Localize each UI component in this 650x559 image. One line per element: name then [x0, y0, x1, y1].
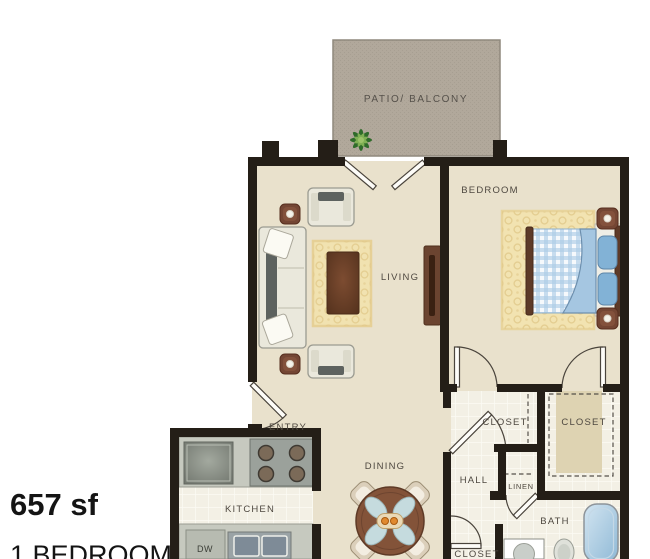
kitchen-sink	[228, 532, 291, 559]
coffee-table	[327, 252, 359, 314]
side-table-bottom	[280, 354, 300, 374]
patio-balcony: PATIO/ BALCONY	[333, 40, 500, 156]
plant-icon	[350, 129, 372, 151]
room-label-kitchen: KITCHEN	[225, 504, 275, 515]
walkin-closet-shelf	[556, 391, 602, 473]
room-label-living: LIVING	[381, 272, 419, 283]
floor-plan-svg: PATIO/ BALCONY	[0, 0, 650, 559]
refrigerator	[184, 442, 233, 484]
bathroom-sink	[504, 539, 544, 559]
walkin-closet-door	[601, 347, 606, 387]
bed	[526, 224, 622, 316]
dishwasher-label: DW	[197, 544, 213, 554]
room-label-dining: DINING	[365, 461, 405, 472]
room-label-bedroom: BEDROOM	[461, 185, 519, 196]
dining-table	[348, 479, 433, 559]
armchair-top	[308, 188, 354, 226]
dishwasher: DW	[186, 530, 225, 559]
room-label-closet-bedroom: CLOSET	[482, 417, 527, 428]
stove	[250, 439, 313, 486]
bedroom-door	[455, 347, 460, 387]
room-label-linen: LINEN	[508, 482, 534, 491]
room-label-hall: HALL	[460, 475, 489, 486]
nightstand-top	[597, 208, 618, 229]
unit-type: 1 BEDROOM	[10, 540, 172, 559]
unit-area: 657 sf	[10, 487, 99, 522]
sofa	[259, 227, 306, 348]
room-label-closet-walkin: CLOSET	[561, 417, 606, 428]
room-label-patio: PATIO/ BALCONY	[364, 94, 468, 105]
armchair-bottom	[308, 345, 354, 378]
floor-plan-image: PATIO/ BALCONY	[0, 0, 650, 559]
room-label-entry: ENTRY	[269, 422, 307, 433]
media-console	[424, 246, 441, 325]
toilet	[554, 539, 574, 559]
nightstand-bottom	[597, 308, 618, 329]
room-label-closet-hall: CLOSET	[454, 549, 499, 559]
hall-closet-door	[451, 544, 481, 549]
kitchen-counter-top	[179, 437, 313, 487]
kitchen-counter-bottom: DW	[179, 524, 313, 559]
bathtub	[584, 504, 618, 559]
side-table-top	[280, 204, 300, 224]
room-label-bath: BATH	[540, 516, 569, 527]
